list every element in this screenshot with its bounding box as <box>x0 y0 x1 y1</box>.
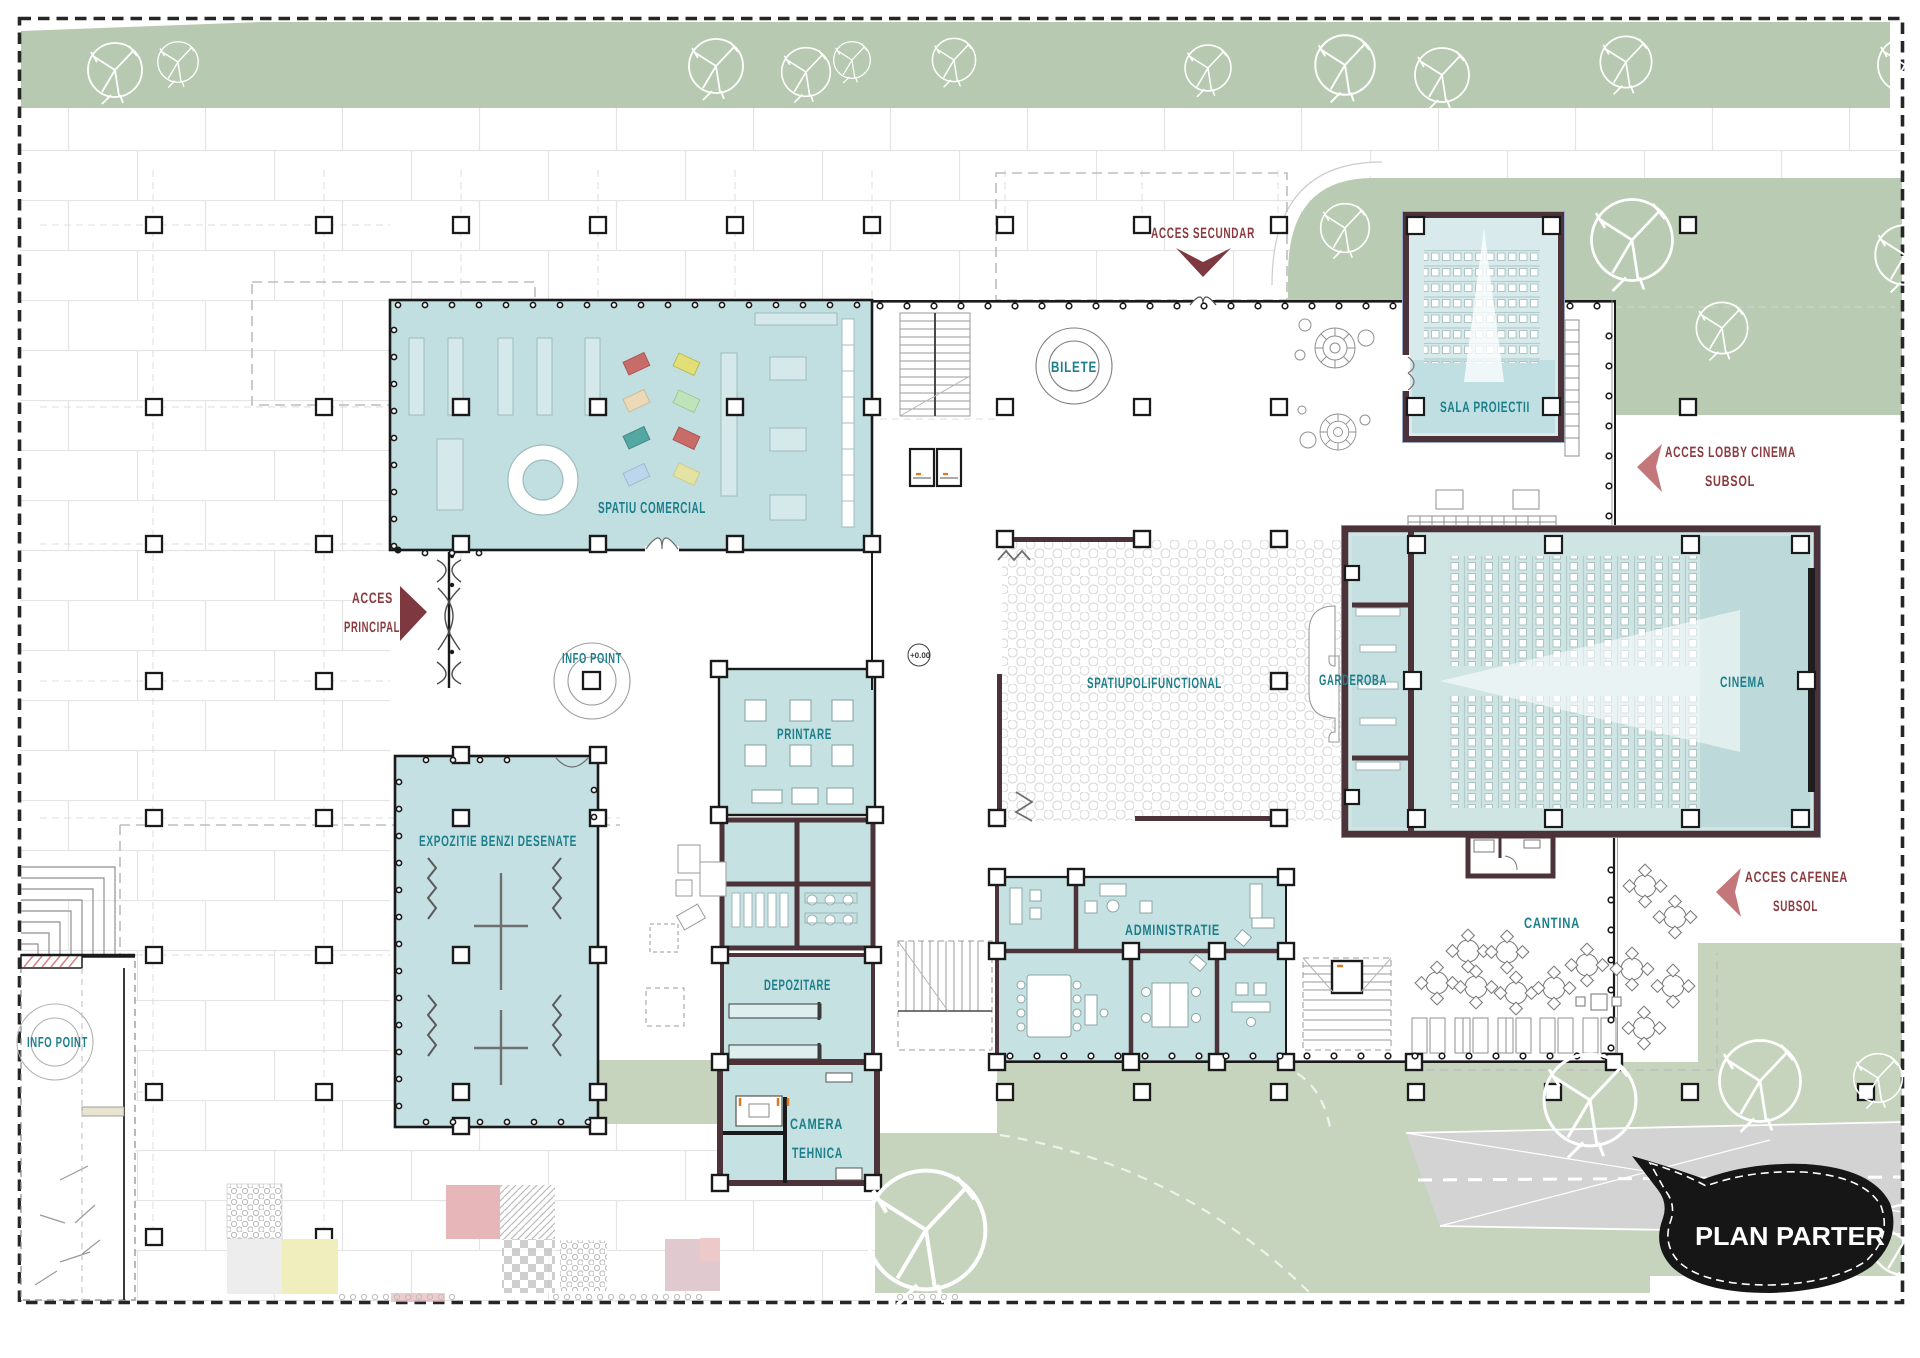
svg-text:PRINTARE: PRINTARE <box>777 726 832 743</box>
svg-text:ADMINISTRATIE: ADMINISTRATIE <box>1125 922 1220 939</box>
svg-text:+0.00: +0.00 <box>910 651 931 660</box>
svg-text:INFO POINT: INFO POINT <box>27 1035 88 1051</box>
svg-text:SPATIUPOLIFUNCTIONAL: SPATIUPOLIFUNCTIONAL <box>1087 675 1222 692</box>
svg-text:ACCES SECUNDAR: ACCES SECUNDAR <box>1151 225 1255 242</box>
svg-text:ACCES LOBBY CINEMA: ACCES LOBBY CINEMA <box>1665 444 1796 461</box>
svg-text:ACCES CAFENEA: ACCES CAFENEA <box>1745 869 1848 886</box>
svg-text:ACCES: ACCES <box>352 590 393 607</box>
svg-text:SALA PROIECTII: SALA PROIECTII <box>1440 399 1530 416</box>
svg-text:INFO POINT: INFO POINT <box>562 651 622 667</box>
svg-text:CANTINA: CANTINA <box>1524 915 1580 932</box>
svg-text:SUBSOL: SUBSOL <box>1773 898 1818 915</box>
svg-text:TEHNICA: TEHNICA <box>792 1145 843 1162</box>
svg-text:SPATIU COMERCIAL: SPATIU COMERCIAL <box>598 500 706 517</box>
svg-text:PRINCIPAL: PRINCIPAL <box>344 619 400 636</box>
svg-text:SUBSOL: SUBSOL <box>1705 473 1755 490</box>
svg-text:DEPOZITARE: DEPOZITARE <box>764 977 831 994</box>
svg-text:CAMERA: CAMERA <box>790 1116 843 1133</box>
svg-text:BILETE: BILETE <box>1051 359 1097 376</box>
svg-text:PLAN PARTER: PLAN PARTER <box>1695 1221 1885 1251</box>
svg-text:GARDEROBA: GARDEROBA <box>1319 672 1387 689</box>
svg-text:CINEMA: CINEMA <box>1720 674 1765 691</box>
svg-text:EXPOZITIE BENZI DESENATE: EXPOZITIE BENZI DESENATE <box>419 833 577 850</box>
